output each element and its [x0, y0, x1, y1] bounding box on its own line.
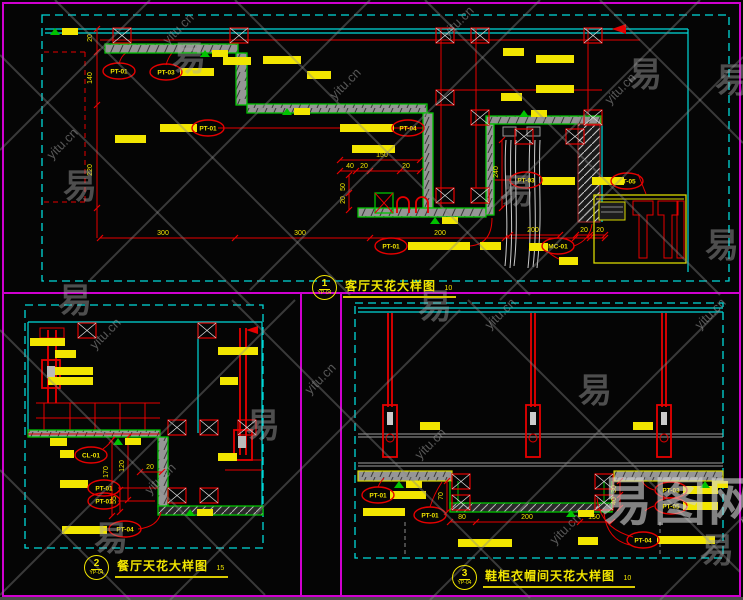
material-tag: PT-01: [362, 487, 394, 503]
blocking-symbol: [200, 420, 218, 435]
ceiling-hangers: [383, 313, 671, 457]
watermark-site-text: yitu.cn: [44, 125, 81, 162]
blocking-symbol: [200, 488, 218, 503]
detail-number: 3: [459, 569, 471, 580]
dimension-text: 140: [87, 72, 94, 84]
hanger-rod: [657, 313, 671, 457]
annotation-text-bar: [390, 491, 426, 499]
dimension-text: 200: [434, 230, 446, 237]
detail-number: 2: [91, 559, 103, 570]
annotation-text-bar: [503, 48, 524, 56]
annotation-text-bar: [220, 377, 238, 385]
watermark-site-text: yitu.cn: [482, 295, 519, 332]
annotation-text-bar: [55, 350, 76, 358]
detail-number-circle: 2 YP-04: [84, 555, 109, 580]
dimension-text: 170: [103, 466, 110, 478]
dimension-text: 240: [493, 166, 500, 178]
dimension-text: 200: [521, 514, 533, 521]
blocking-symbol: [436, 188, 454, 203]
material-tag: PT-04: [627, 532, 659, 548]
material-tag-label: PT-01: [199, 126, 217, 133]
watermark-big-logo: 易图网: [600, 474, 743, 532]
material-tag-label: CL-01: [82, 453, 100, 460]
annotation-text-bar: [218, 347, 258, 355]
annotation-text-bar: [55, 367, 93, 375]
dimension-text: 50: [340, 183, 347, 191]
watermark-site-text: yitu.cn: [302, 360, 339, 397]
annotation-text-bar: [223, 57, 251, 65]
watermark-logo-char: 易: [246, 407, 280, 445]
material-tag: CL-01: [75, 447, 107, 463]
level-mark: [519, 110, 547, 117]
cad-sheet: PT-01PT-03PT-01PT-04PT-03PT-05PT-01MC-01…: [0, 0, 743, 600]
dimension-text: 55: [111, 496, 118, 504]
detail-scale: 10: [444, 285, 452, 292]
detail-title-1: 1 YP-04 客厅天花大样图 10: [312, 275, 456, 300]
blocking-symbol: [584, 28, 602, 43]
dimension-text: 150: [588, 514, 600, 521]
level-mark: [113, 438, 141, 445]
sheet-ref: YP-04: [90, 570, 104, 576]
annotation-text-bar: [559, 257, 578, 265]
material-tag-label: PT-01: [421, 513, 439, 520]
annotation-text-bar: [542, 177, 575, 185]
cad-drawing-canvas: PT-01PT-03PT-01PT-04PT-03PT-05PT-01MC-01…: [0, 0, 743, 600]
blocking-symbol: [198, 323, 216, 338]
material-tag: PT-01: [375, 238, 407, 254]
dimension-text: 20: [596, 227, 604, 234]
watermark-logo-char: 易: [715, 62, 743, 100]
annotation-text-bar: [363, 508, 405, 516]
dimension-text: 80: [458, 514, 466, 521]
annotation-text-bar: [30, 338, 65, 346]
annotation-text-bar: [633, 422, 653, 430]
detail-number-circle: 3 YP-04: [452, 565, 477, 590]
detail-scale: 15: [216, 565, 224, 572]
dimension-text: 70: [438, 492, 445, 500]
annotation-text-bar: [115, 135, 146, 143]
sheet-ref: YP-04: [458, 580, 472, 586]
detail-scale: 10: [623, 575, 631, 582]
dimension-text: 300: [157, 230, 169, 237]
blocking-symbol: [471, 28, 489, 43]
detail-number: 1: [319, 279, 331, 290]
annotation-text-bar: [218, 453, 237, 461]
dimension-text: 20: [360, 163, 368, 170]
sheet-ref: YP-04: [318, 290, 332, 296]
annotation-text-bar: [578, 537, 598, 545]
watermark-site-text: yitu.cn: [327, 65, 364, 102]
material-tag-label: PT-04: [634, 538, 652, 545]
hanger-rod: [526, 313, 540, 457]
blocking-symbol: [168, 420, 186, 435]
annotation-text-bar: [529, 243, 548, 251]
watermark-logo-char: 易: [700, 532, 734, 570]
dimension-text: 200: [527, 227, 539, 234]
watermark-logo-char: 易: [500, 173, 534, 211]
blocking-symbol: [436, 90, 454, 105]
cabinet-section: [594, 195, 686, 263]
watermark-logo-char: 易: [63, 168, 97, 206]
detail-title-text: 餐厅天花大样图: [117, 559, 208, 573]
detail-title-text: 鞋柜衣帽间天花大样图: [485, 569, 615, 583]
watermark-site-text: yitu.cn: [87, 315, 124, 352]
watermark-logo-char: 易: [628, 56, 662, 94]
material-tag-label: PT-01: [369, 493, 387, 500]
annotation-text-bar: [60, 450, 74, 458]
detail-title-2: 2 YP-04 餐厅天花大样图 15: [84, 555, 228, 580]
dimension-text: 40: [346, 163, 354, 170]
annotation-text-bar: [536, 85, 574, 93]
watermark-logo-char: 易: [705, 227, 739, 265]
annotation-text-bar: [60, 480, 88, 488]
watermark-logo-char: 易: [58, 282, 92, 320]
detail-title-text: 客厅天花大样图: [345, 279, 436, 293]
detail-number-circle: 1 YP-04: [312, 275, 337, 300]
dimension-text: 20: [146, 464, 154, 471]
blocking-symbol: [452, 474, 470, 489]
material-tag-label: PT-01: [382, 244, 400, 251]
dimension-text: 20: [580, 227, 588, 234]
watermark-site-text: yitu.cn: [412, 425, 449, 462]
detail-title-3: 3 YP-04 鞋柜衣帽间天花大样图 10: [452, 565, 635, 590]
blocking-symbol: [230, 28, 248, 43]
watermark-logo-char: 易: [94, 520, 128, 558]
watermark-logo-char: 易: [172, 40, 206, 78]
annotation-text-bar: [408, 242, 470, 250]
watermark-logo-char: 易: [578, 372, 612, 410]
annotation-text-bar: [50, 438, 67, 446]
annotation-text-bar: [536, 55, 574, 63]
